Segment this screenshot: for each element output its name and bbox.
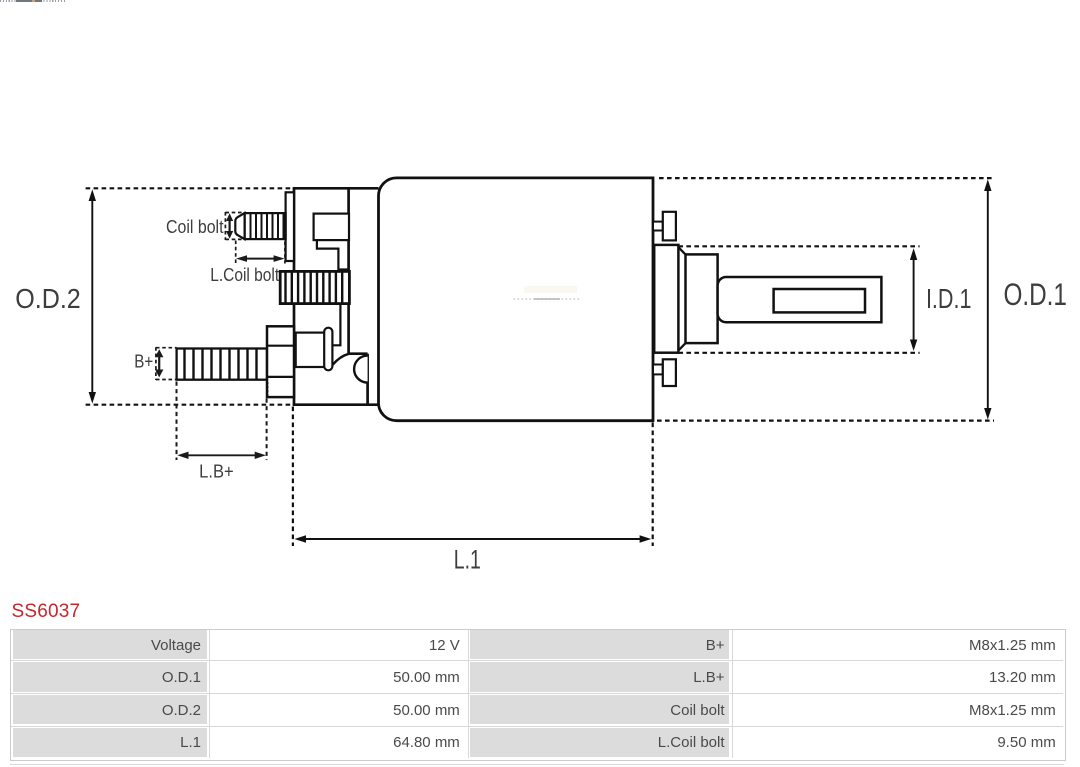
- svg-text:L.1: L.1: [454, 544, 481, 574]
- svg-text:L.B+: L.B+: [199, 462, 234, 482]
- svg-text:B+: B+: [134, 352, 153, 372]
- svg-text:O.D.2: O.D.2: [15, 283, 81, 314]
- svg-text:I.D.1: I.D.1: [926, 283, 972, 314]
- svg-text:L.Coil bolt: L.Coil bolt: [210, 265, 279, 285]
- svg-text:O.D.1: O.D.1: [1003, 276, 1067, 312]
- svg-text:Coil bolt: Coil bolt: [166, 217, 224, 237]
